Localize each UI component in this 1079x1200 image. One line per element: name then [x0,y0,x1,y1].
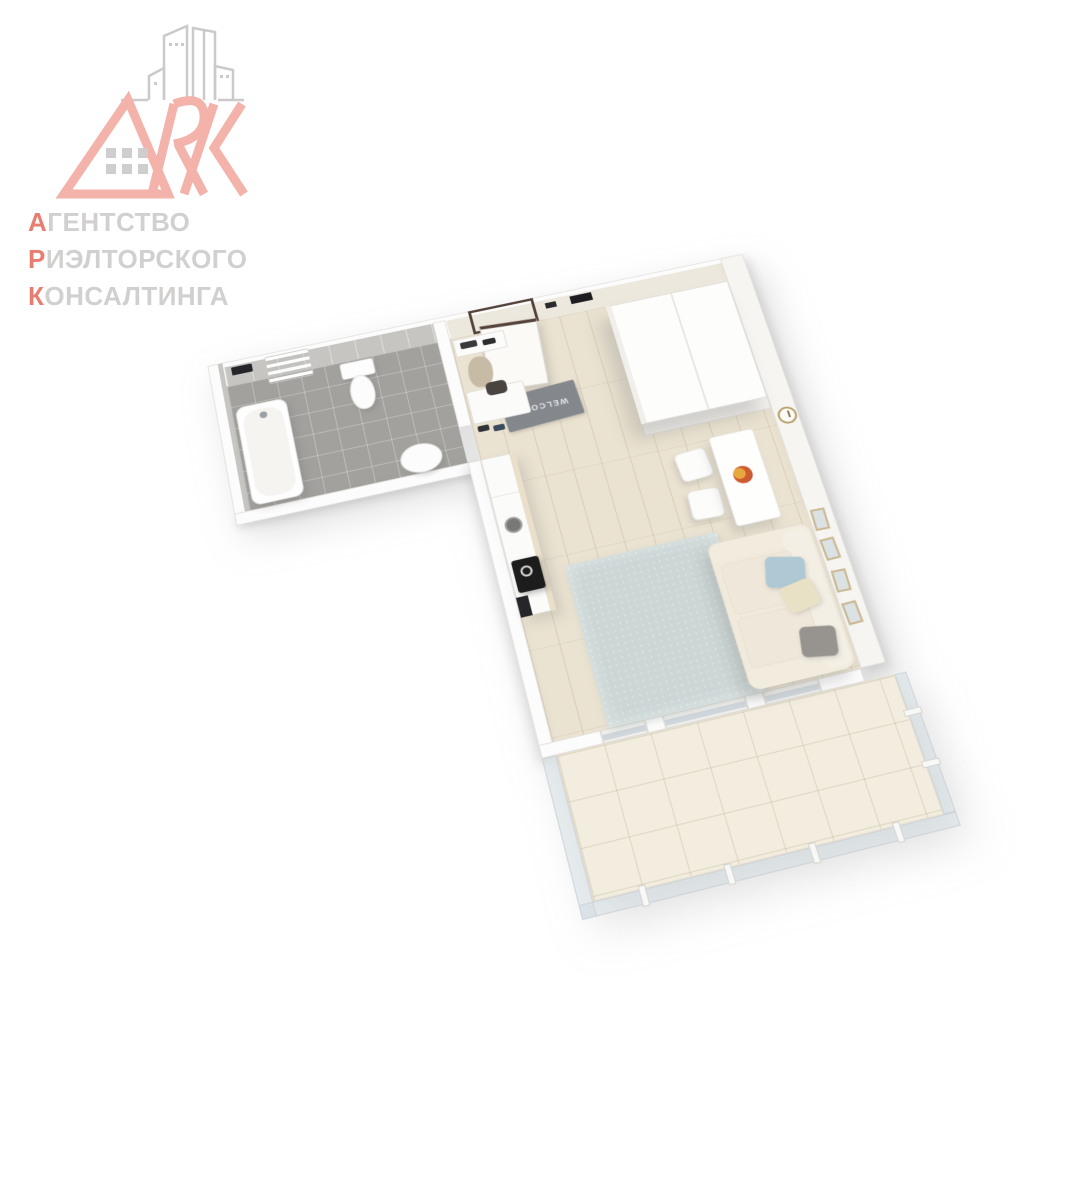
buildings-icon [121,26,244,100]
logo-line-3-accent: К [28,281,44,311]
hat [460,340,478,350]
logo-line-1-rest: ГЕНТСТВО [47,207,190,237]
pillow-gray [798,625,839,658]
logo-line-3: КОНСАЛТИНГА [28,278,278,315]
logo-line-2: РИЭЛТОРСКОГО [28,241,278,278]
agency-logo: АГЕНТСТВО РИЭЛТОРСКОГО КОНСАЛТИНГА [28,8,278,315]
logo-line-1-accent: А [28,207,47,237]
bathtub-basin [241,404,298,499]
logo-line-1: АГЕНТСТВО [28,204,278,241]
floorplan: WELCOME [207,251,961,986]
floorplan-scene: WELCOME [255,245,915,975]
logo-line-2-accent: Р [28,244,46,274]
clock-hand [787,410,791,417]
house-window-grid-icon [106,148,148,174]
ark-letters-icon [64,100,244,194]
logo-monogram-icon [28,8,268,200]
logo-line-2-rest: ИЭЛТОРСКОГО [46,244,248,274]
dining-chair [686,486,726,521]
logo-line-3-rest: ОНСАЛТИНГА [44,281,229,311]
logo-text: АГЕНТСТВО РИЭЛТОРСКОГО КОНСАЛТИНГА [28,204,278,315]
hat [482,337,496,345]
cooktop-burner [519,564,533,577]
